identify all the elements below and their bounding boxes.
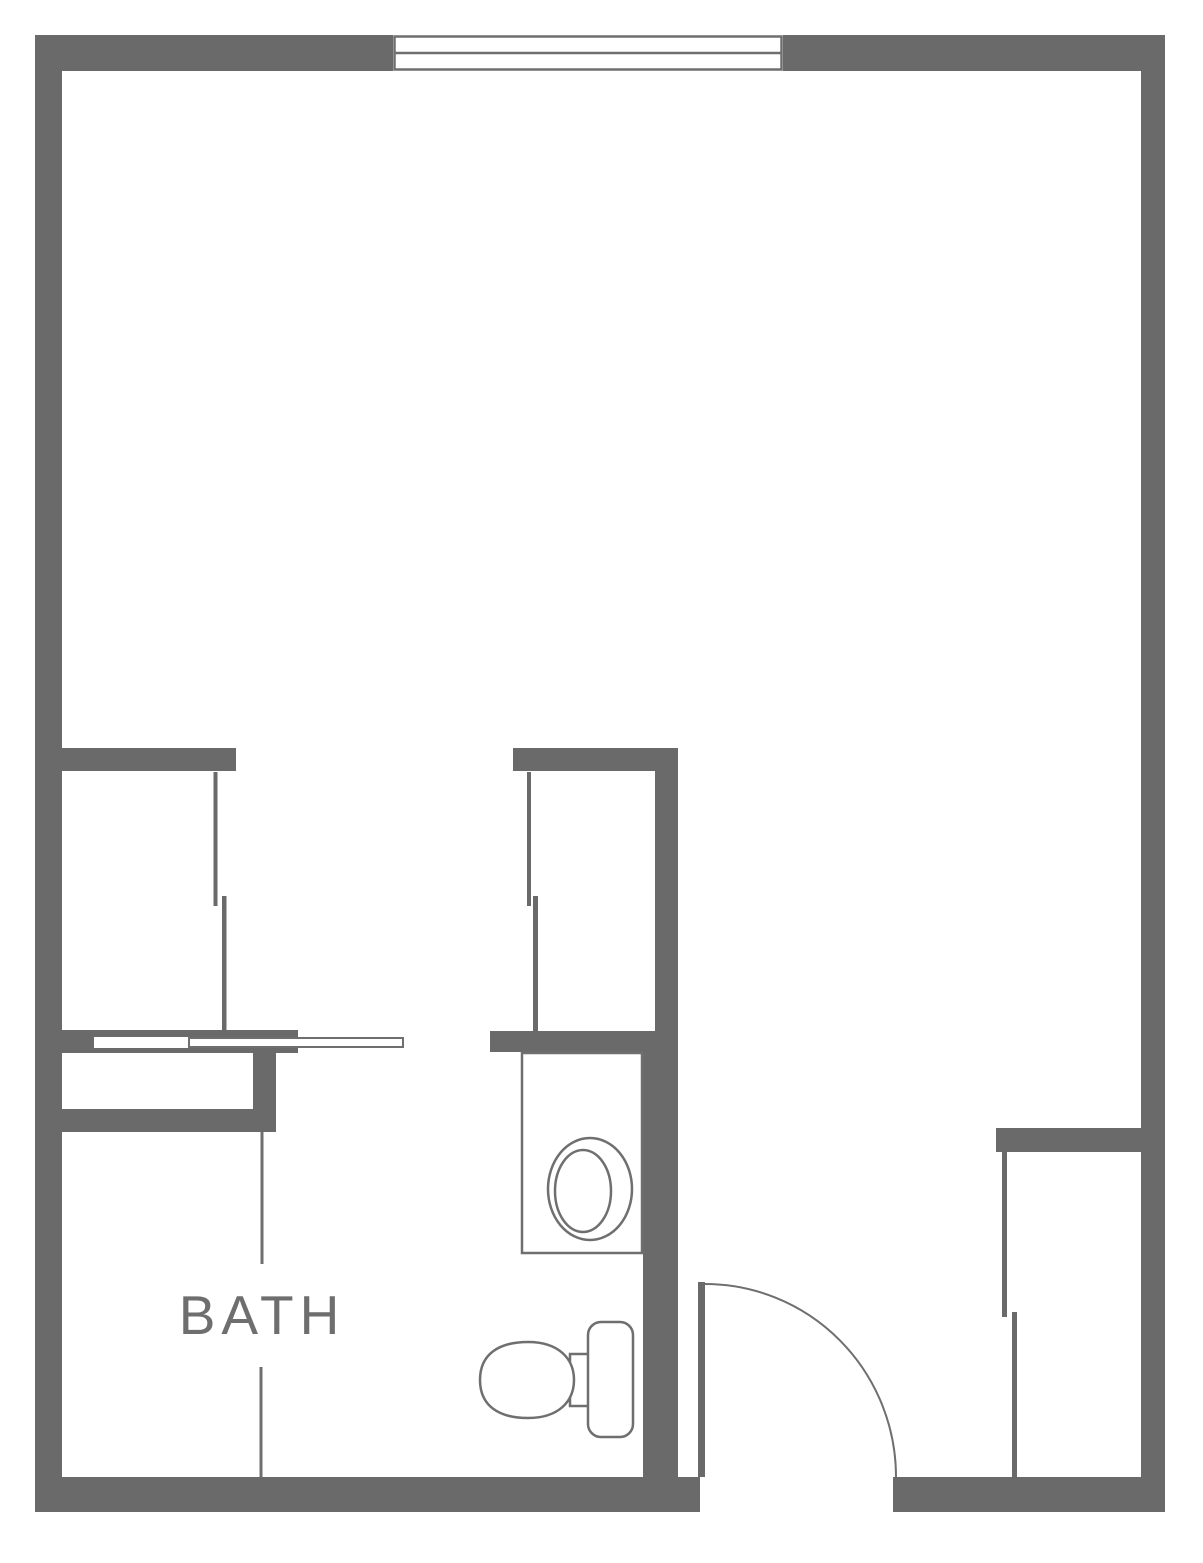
vanity-sink-icon: [522, 1053, 642, 1253]
sliding-door-left-closet-panel-2: [222, 896, 227, 1031]
exterior-wall-left: [35, 35, 62, 1512]
door-leaf: [698, 1282, 705, 1477]
sliding-door-right-closet-panel-1: [1002, 1152, 1007, 1317]
toilet-bowl: [480, 1342, 574, 1418]
bath-pocket-door-slot: [94, 1037, 189, 1048]
sink-basin-outer: [548, 1138, 632, 1240]
toilet-icon: [480, 1322, 633, 1437]
closet-wall-stub-right: [996, 1128, 1141, 1152]
door-swing-arc: [705, 1284, 896, 1477]
entry-door-icon: [698, 1282, 896, 1477]
exterior-wall-top-right: [783, 35, 1165, 71]
toilet-room-wall: [643, 1031, 678, 1477]
exterior-wall-right: [1141, 35, 1165, 1512]
closet-wall-stub-left: [61, 748, 236, 771]
bath-sliding-door-panel: [189, 1038, 403, 1047]
sliding-door-left-closet-panel-1: [214, 772, 218, 906]
exterior-wall-bottom-right: [893, 1477, 1165, 1512]
sliding-door-right-closet-panel-2: [1012, 1312, 1017, 1477]
bath-wall-middle-band: [490, 1031, 655, 1052]
window-icon: [394, 37, 782, 70]
floor-plan-canvas: BATH: [0, 0, 1203, 1563]
closet-wall-stub-middle: [513, 748, 678, 771]
exterior-wall-bottom-left: [35, 1477, 700, 1512]
niche-wall-bottom: [62, 1109, 276, 1132]
sliding-door-middle-closet-panel-2: [533, 896, 538, 1031]
sliding-door-middle-closet-panel-1: [527, 772, 531, 906]
toilet-tank: [588, 1322, 633, 1437]
bath-room-label: BATH: [179, 1284, 346, 1346]
exterior-wall-top-left: [35, 35, 393, 71]
floor-plan-page: BATH: [0, 0, 1203, 1563]
closet-wall-middle-vertical: [655, 748, 678, 1032]
